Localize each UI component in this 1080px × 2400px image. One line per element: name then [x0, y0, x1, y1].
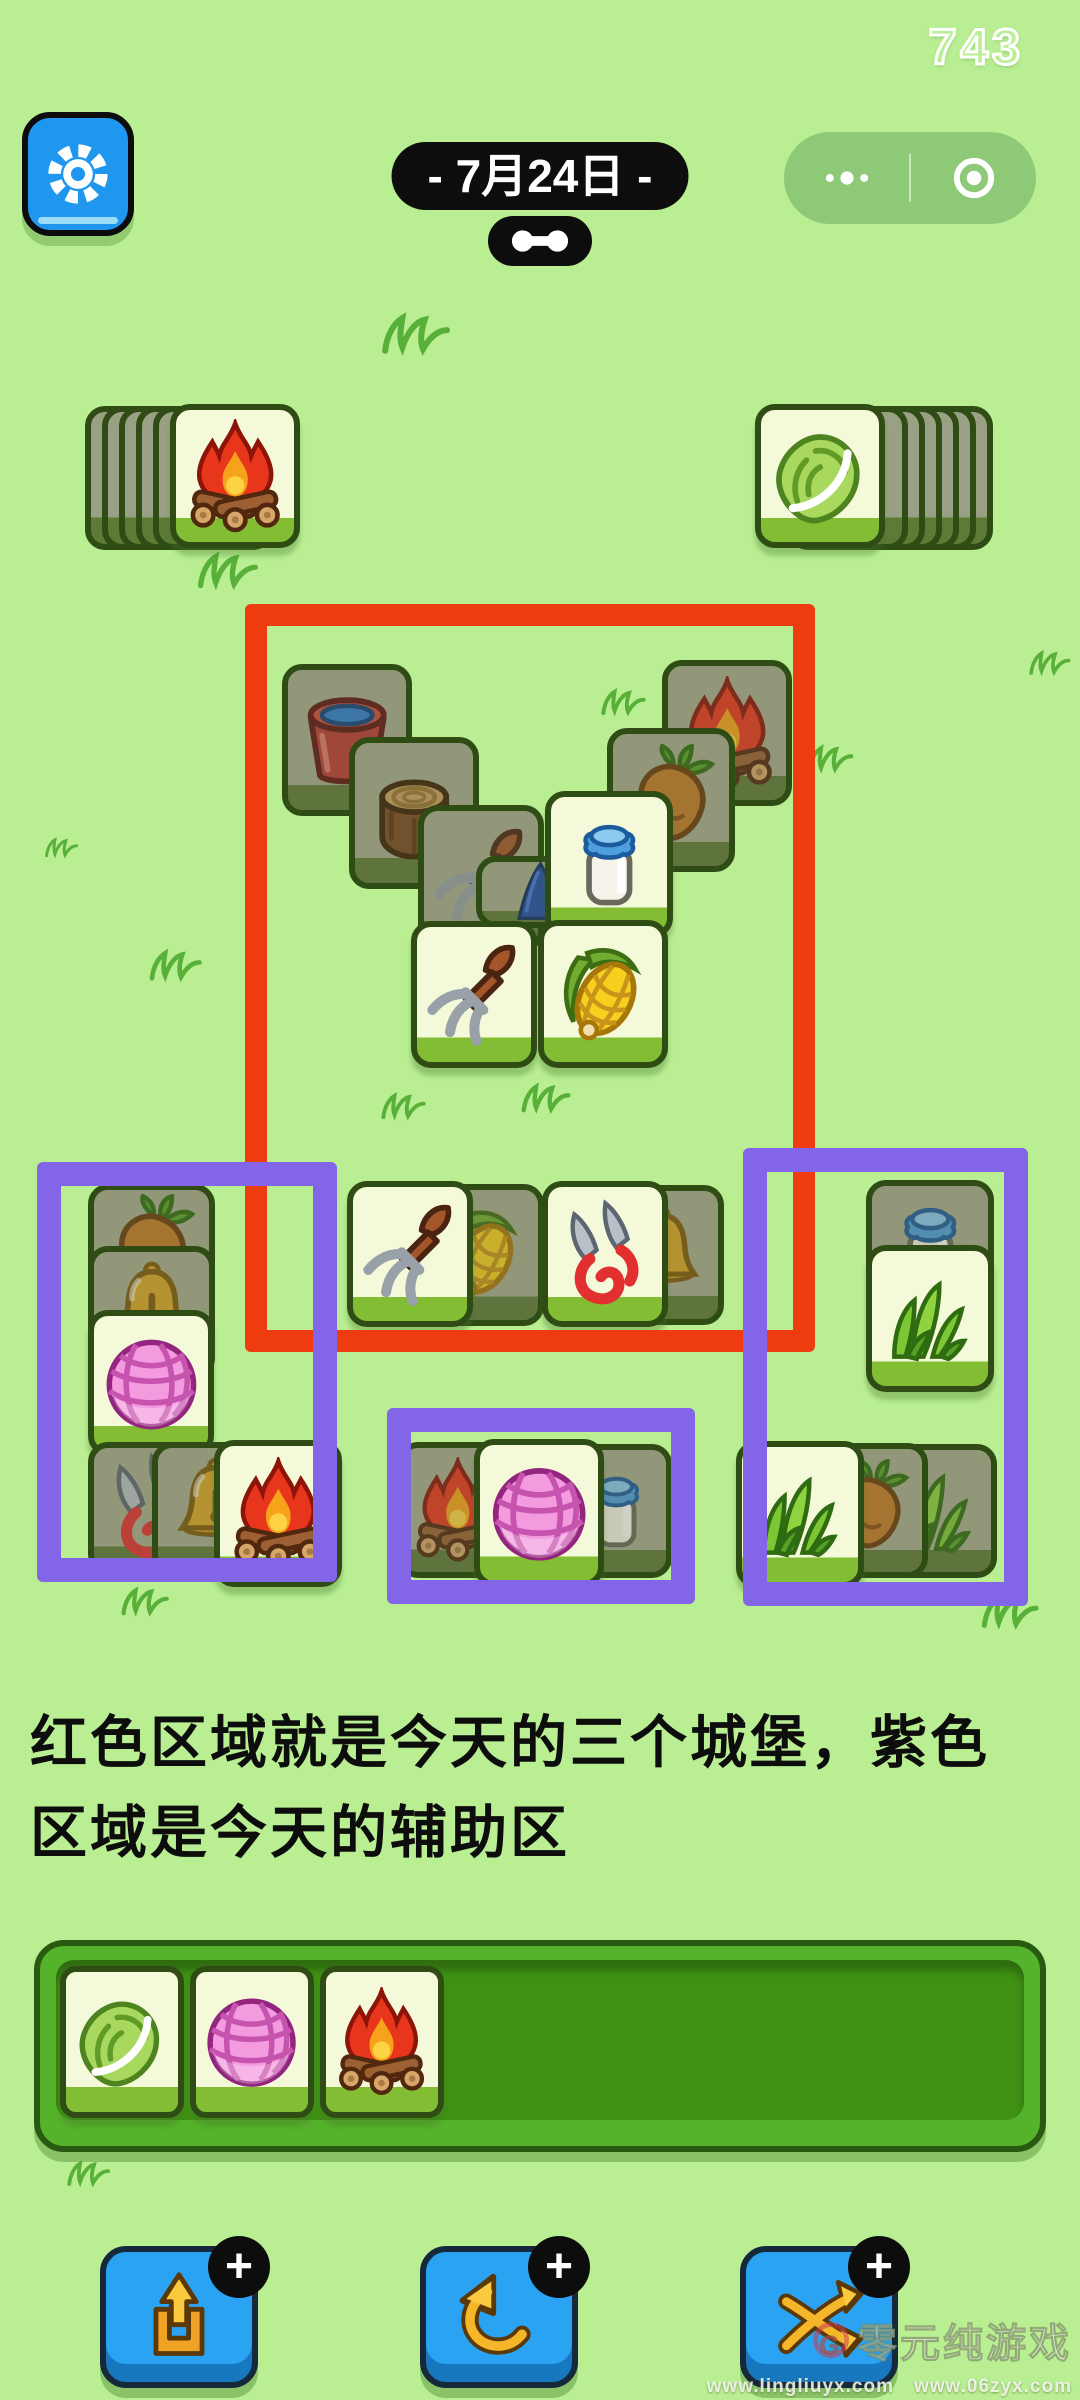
- game-screen: 743 - 7月24日 - 红色区域就是今天的三个城堡，紫色 区域是今天的辅助区…: [0, 0, 1080, 2400]
- undo-button[interactable]: +: [420, 2246, 578, 2388]
- watermark-urls: www.lingliuyx.com www.06zyx.com: [707, 2371, 1072, 2398]
- watermark-title-row: G 零元纯游戏: [707, 2311, 1072, 2369]
- watermark-title: 零元纯游戏: [857, 2311, 1072, 2369]
- powerup-button-row: +++: [0, 0, 1080, 2400]
- plus-badge[interactable]: +: [208, 2236, 270, 2298]
- remove-tiles-button[interactable]: +: [100, 2246, 258, 2388]
- plus-badge[interactable]: +: [848, 2236, 910, 2298]
- plus-badge[interactable]: +: [528, 2236, 590, 2298]
- watermark: G 零元纯游戏 www.lingliuyx.com www.06zyx.com: [707, 2311, 1072, 2398]
- watermark-logo: G: [813, 2322, 849, 2358]
